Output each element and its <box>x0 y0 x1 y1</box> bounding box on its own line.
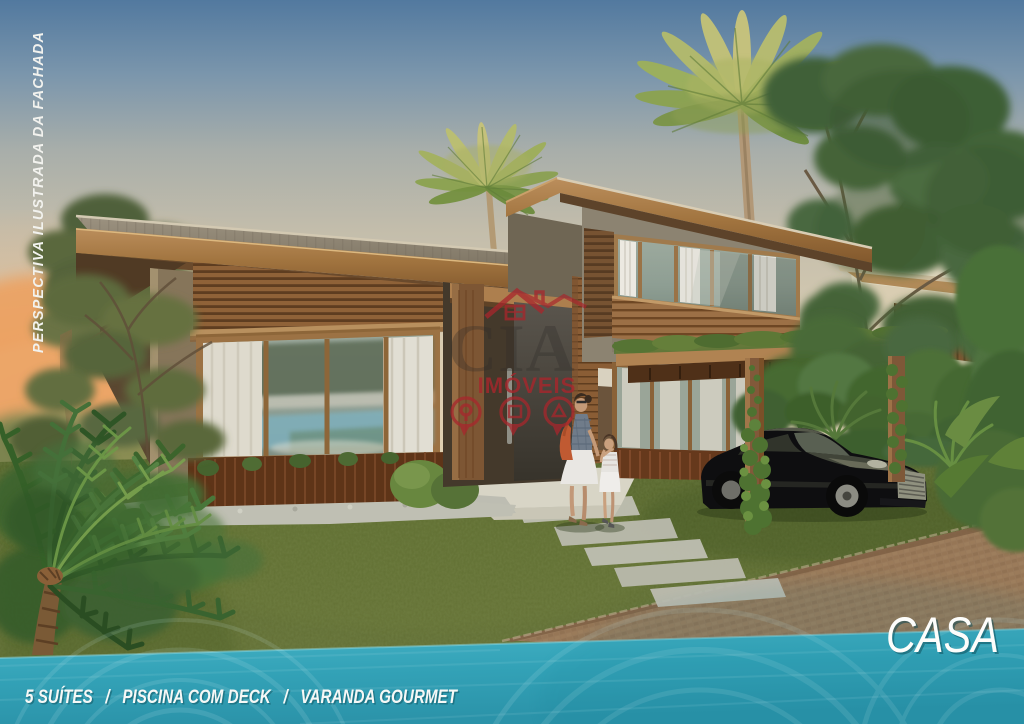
svg-text:CASA: CASA <box>886 607 999 663</box>
svg-text:PERSPECTIVA ILUSTRADA DA FACHA: PERSPECTIVA ILUSTRADA DA FACHADA <box>31 31 47 353</box>
svg-text:5 SUÍTES / PISCINA COM DEC: 5 SUÍTES / PISCINA COM DECK / VARANDA GO… <box>25 686 458 708</box>
svg-text:IMÓVEIS: IMÓVEIS <box>478 373 577 398</box>
